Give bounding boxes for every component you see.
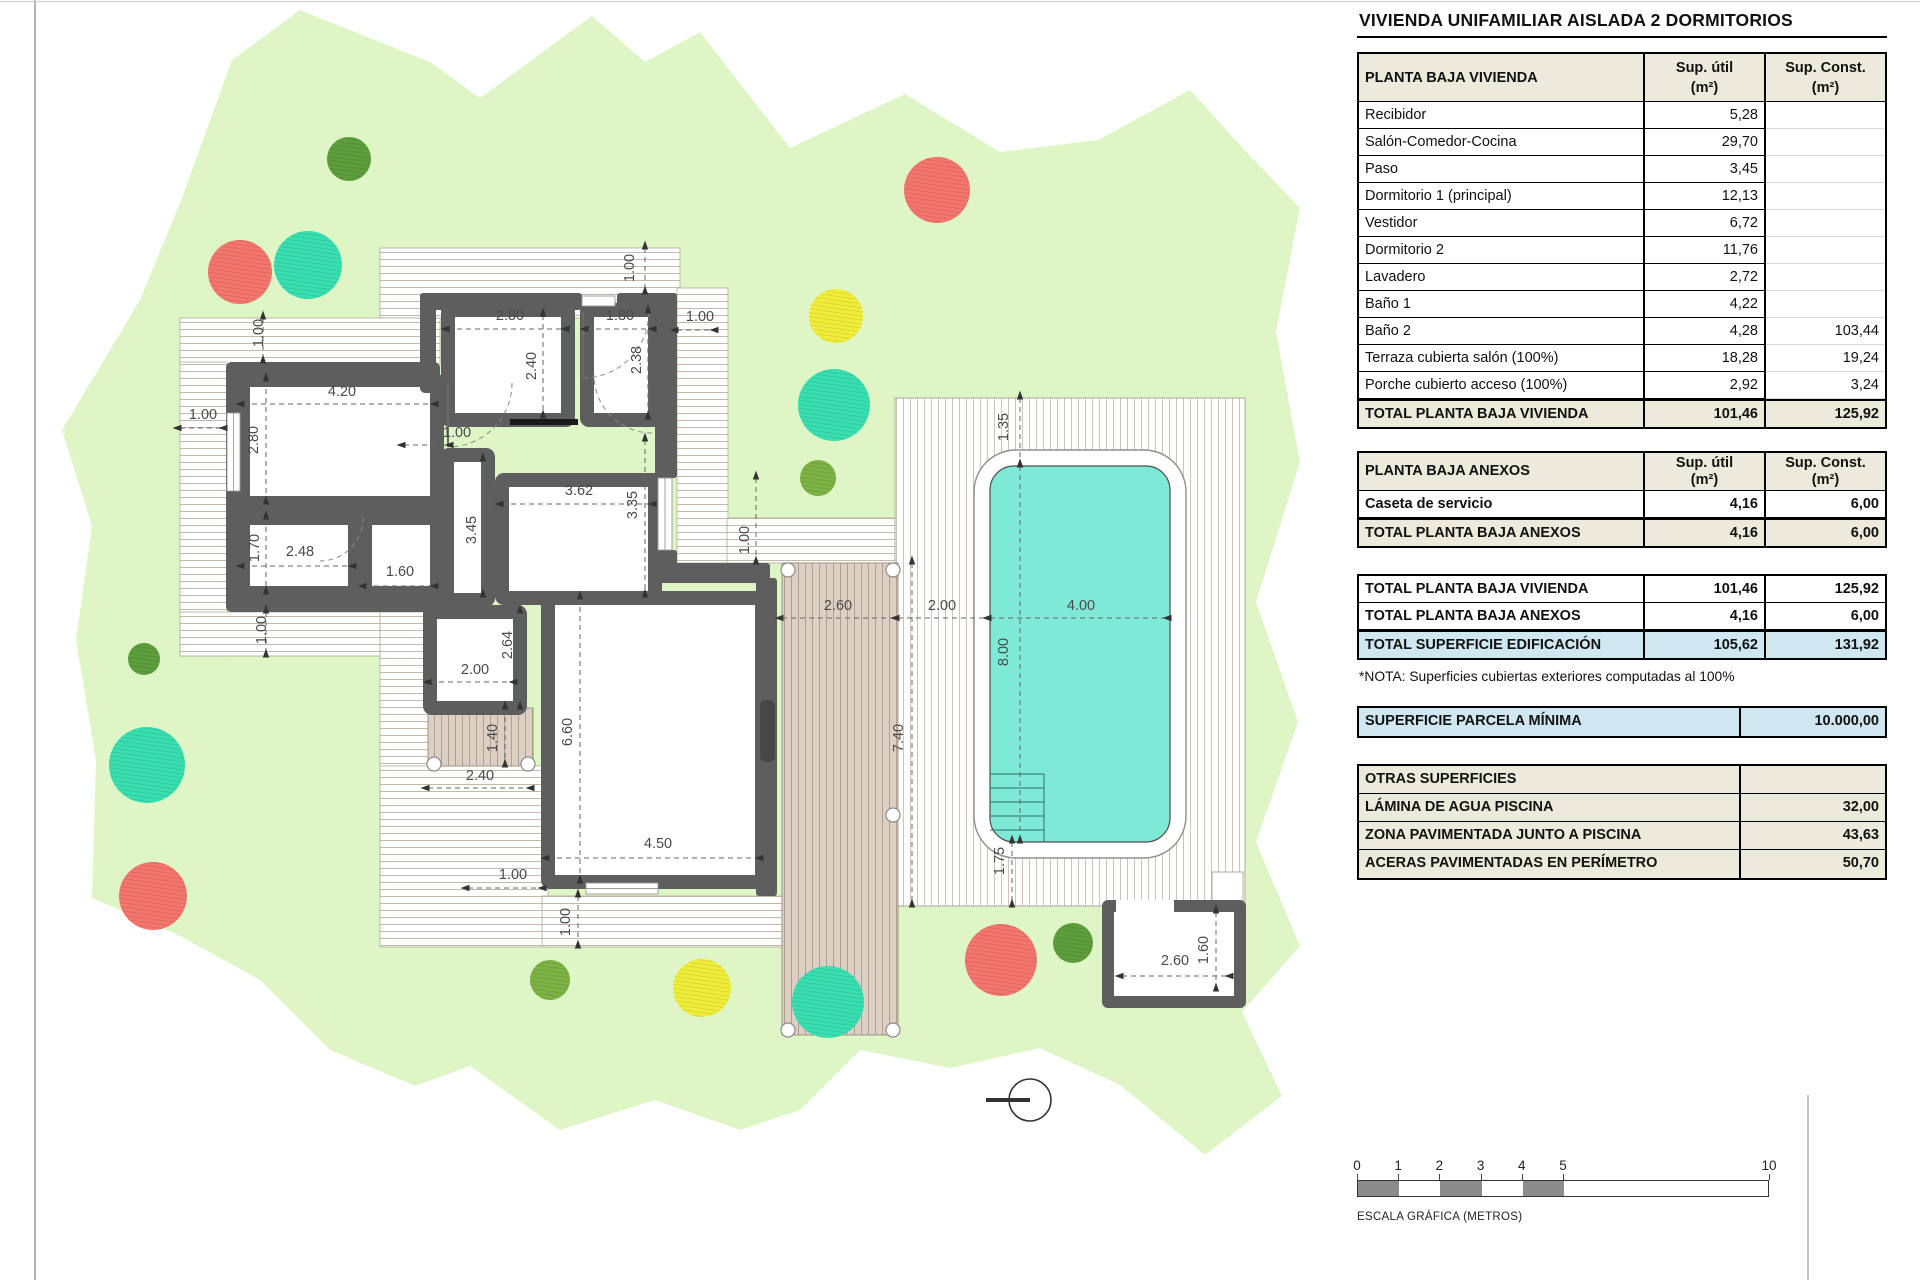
col-sup-util: Sup. útil (m²): [1645, 54, 1766, 102]
entry-threshold: [582, 296, 615, 306]
dimension-label: 1.00: [737, 526, 753, 554]
tree-texture: [274, 231, 342, 299]
table-row: Porche cubierto acceso (100%)2,923,24: [1359, 372, 1885, 399]
table-planta-baja-anexos: PLANTA BAJA ANEXOS Sup. útil (m²) Sup. C…: [1357, 451, 1887, 548]
scale-tick: 0: [1353, 1158, 1361, 1173]
dimension-label: 2.60: [1161, 953, 1189, 969]
dimension-label: 4.50: [644, 836, 672, 852]
sheet-title: VIVIENDA UNIFAMILIAR AISLADA 2 DORMITORI…: [1357, 8, 1887, 38]
porch-rear: [428, 708, 533, 766]
scale-tick: 3: [1477, 1158, 1485, 1173]
dimension-label: 2.40: [524, 352, 540, 380]
room-vestidor: [365, 518, 437, 593]
dimension-label: 2.48: [286, 544, 314, 560]
dimension-label: 1.75: [992, 847, 1008, 875]
caseta-servicio: [1108, 900, 1240, 1002]
table-row: Terraza cubierta salón (100%)18,2819,24: [1359, 345, 1885, 372]
table-row: TOTAL PLANTA BAJA VIVIENDA101,46125,92: [1359, 576, 1885, 603]
dimension-label: 2.40: [466, 768, 494, 784]
table-row: Baño 24,28103,44: [1359, 318, 1885, 345]
window-bar: [510, 419, 578, 425]
tree-texture: [965, 924, 1037, 996]
dimension-label: 1.60: [1196, 936, 1212, 964]
dimension-label: 3.35: [625, 491, 641, 519]
table-row: LÁMINA DE AGUA PISCINA32,00: [1359, 794, 1885, 822]
tree-texture: [792, 966, 864, 1038]
dimension-label: 4.20: [328, 384, 356, 400]
table-row: ACERAS PAVIMENTADAS EN PERÍMETRO50,70: [1359, 850, 1885, 878]
scale-segments: [1357, 1180, 1769, 1197]
dimension-label: 1.00: [499, 867, 527, 883]
table-header-label: PLANTA BAJA VIVIENDA: [1359, 54, 1645, 102]
dimension-label: 1.80: [606, 308, 634, 324]
scale-tick: 1: [1394, 1158, 1402, 1173]
table-row: Lavadero2,72: [1359, 264, 1885, 291]
dimension-label: 2.64: [500, 631, 516, 659]
table-row: Dormitorio 1 (principal)12,13: [1359, 183, 1885, 210]
north-symbol: [986, 1079, 1051, 1121]
dimension-label: 2.80: [496, 308, 524, 324]
tree-texture: [798, 369, 870, 441]
nota: *NOTA: Superficies cubiertas exteriores …: [1357, 669, 1887, 684]
dimension-label: 8.00: [996, 638, 1012, 666]
parcela-minima-row: SUPERFICIE PARCELA MÍNIMA 10.000,00: [1357, 706, 1887, 738]
dimension-label: 1.00: [443, 425, 471, 441]
scale-tick: 5: [1559, 1158, 1567, 1173]
sliding-door-leaf: [760, 700, 775, 762]
scale-tick: 2: [1436, 1158, 1444, 1173]
table-row: Recibidor5,28: [1359, 102, 1885, 129]
tree-texture: [809, 289, 863, 343]
dimension-label: 2.00: [928, 598, 956, 614]
table-row: Paso3,45: [1359, 156, 1885, 183]
dimension-label: 1.35: [996, 413, 1012, 441]
tree-texture: [800, 460, 836, 496]
dimension-label: 1.60: [386, 564, 414, 580]
dimension-label: 1.00: [254, 616, 270, 644]
tree-texture: [673, 959, 731, 1017]
dimension-label: 1.00: [189, 407, 217, 423]
scale-bar: 01234510 ESCALA GRÁFICA (METROS): [1357, 1158, 1777, 1223]
tree-texture: [109, 727, 185, 803]
pool-water: [990, 466, 1170, 842]
table-planta-baja-vivienda: PLANTA BAJA VIVIENDA Sup. útil (m²) Sup.…: [1357, 52, 1887, 429]
dimension-label: 1.40: [485, 724, 501, 752]
dimension-label: 2.38: [629, 346, 645, 374]
scale-tick: 4: [1518, 1158, 1526, 1173]
tree-texture: [530, 960, 570, 1000]
table-header: PLANTA BAJA ANEXOS Sup. útil (m²) Sup. C…: [1359, 453, 1885, 491]
dimension-label: 2.00: [461, 662, 489, 678]
dimension-label: 2.80: [246, 426, 262, 454]
table-header: OTRAS SUPERFICIES: [1359, 766, 1885, 794]
dimension-label: 1.00: [251, 319, 267, 347]
table-row: Vestidor6,72: [1359, 210, 1885, 237]
table-header: PLANTA BAJA VIVIENDA Sup. útil (m²) Sup.…: [1359, 54, 1885, 102]
scale-label: ESCALA GRÁFICA (METROS): [1357, 1211, 1777, 1223]
terrace-salon: [782, 563, 898, 1035]
total-superficie-row: TOTAL SUPERFICIE EDIFICACIÓN 105,62 131,…: [1359, 630, 1885, 658]
table-total-row: TOTAL PLANTA BAJA VIVIENDA 101,46 125,92: [1359, 399, 1885, 427]
tree-texture: [208, 240, 272, 304]
scale-tick: 10: [1761, 1158, 1776, 1173]
table-resumen: TOTAL PLANTA BAJA VIVIENDA101,46125,92TO…: [1357, 574, 1887, 660]
table-row: ZONA PAVIMENTADA JUNTO A PISCINA43,63: [1359, 822, 1885, 850]
dimension-label: 1.00: [686, 309, 714, 325]
dimension-label: 7.40: [891, 724, 907, 752]
dimension-label: 1.00: [558, 908, 574, 936]
table-row: TOTAL PLANTA BAJA ANEXOS4,166,00: [1359, 603, 1885, 630]
tree-texture: [904, 157, 970, 223]
tree-texture: [119, 862, 187, 930]
dimension-label: 3.45: [464, 516, 480, 544]
area-panel: VIVIENDA UNIFAMILIAR AISLADA 2 DORMITORI…: [1357, 8, 1887, 880]
tree-texture: [327, 137, 371, 181]
dimension-label: 3.62: [565, 483, 593, 499]
dimension-label: 1.00: [622, 254, 638, 282]
table-total-row: TOTAL PLANTA BAJA ANEXOS 4,16 6,00: [1359, 518, 1885, 546]
dimension-label: 4.00: [1067, 598, 1095, 614]
dimension-label: 2.60: [824, 598, 852, 614]
scale-ticks: 01234510: [1357, 1158, 1777, 1180]
room-dormitorio-2: [448, 310, 568, 420]
dimension-label: 6.60: [560, 718, 576, 746]
table-otras-superficies: OTRAS SUPERFICIES LÁMINA DE AGUA PISCINA…: [1357, 764, 1887, 880]
table-row: Baño 14,22: [1359, 291, 1885, 318]
table-row: Caseta de servicio4,166,00: [1359, 491, 1885, 518]
table-row: Dormitorio 211,76: [1359, 237, 1885, 264]
tree-texture: [1053, 923, 1093, 963]
tree-texture: [128, 643, 160, 675]
col-sup-const: Sup. Const. (m²): [1766, 54, 1885, 102]
architectural-sheet: 1.001.002.801.801.002.402.381.004.202.80…: [0, 0, 1920, 1280]
table-row: Salón-Comedor-Cocina29,70: [1359, 129, 1885, 156]
dimension-label: 1.70: [247, 534, 263, 562]
